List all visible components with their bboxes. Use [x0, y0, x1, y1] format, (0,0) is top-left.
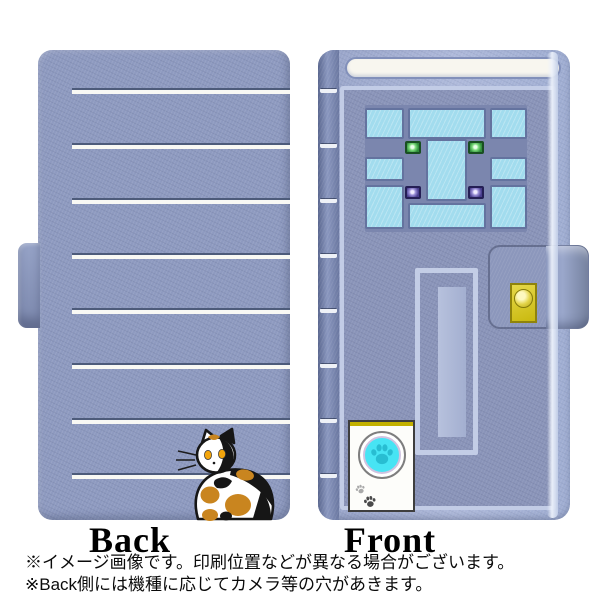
spine-band	[320, 308, 337, 313]
green-light-icon	[468, 141, 484, 154]
purple-light-icon	[468, 186, 484, 199]
purple-light-icon	[405, 186, 421, 199]
back-stripe	[72, 198, 290, 204]
product-image: Back Front ※イメージ画像です。印刷位置などが異なる場合がございます。…	[0, 0, 600, 600]
door-window-panes	[365, 105, 527, 232]
back-strap-tab	[18, 243, 40, 328]
back-stripe	[72, 363, 290, 369]
paw-print-icon	[362, 494, 378, 510]
window-pane-center	[426, 139, 467, 201]
spine-band	[320, 198, 337, 203]
window-pane	[490, 185, 527, 229]
back-stripe	[72, 308, 290, 314]
note-line-2: ※Back側には機種に応じてカメラ等の穴があきます。	[25, 574, 597, 596]
mail-slot-bar	[438, 287, 466, 437]
spine-band	[320, 253, 337, 258]
back-cover	[38, 50, 290, 520]
back-stripe	[72, 418, 290, 424]
window-pane	[365, 157, 404, 181]
green-light-icon	[405, 141, 421, 154]
front-cover	[318, 50, 570, 520]
intercom-button	[358, 431, 406, 479]
spine	[318, 50, 339, 520]
back-stripe	[72, 88, 290, 94]
doorknob-circle	[514, 289, 533, 308]
intercom-top-strip	[350, 422, 413, 426]
back-stripe	[72, 253, 290, 259]
calico-cat-illustration	[181, 428, 285, 520]
window-pane	[365, 108, 404, 139]
back-stripe	[72, 143, 290, 149]
case-edge-highlight	[547, 52, 558, 518]
door-transom-window	[345, 57, 561, 79]
spine-band	[320, 88, 337, 93]
spine-band	[320, 143, 337, 148]
spine-band	[320, 418, 337, 423]
note-line-1: ※イメージ画像です。印刷位置などが異なる場合がございます。	[25, 552, 597, 574]
spine-band	[320, 473, 337, 478]
paw-print-icon	[353, 482, 367, 496]
paw-intercom-panel	[348, 420, 415, 512]
window-pane	[490, 108, 527, 139]
window-pane	[365, 185, 404, 229]
paw-print-icon	[363, 436, 401, 474]
disclaimer-notes: ※イメージ画像です。印刷位置などが異なる場合がございます。 ※Back側には機種…	[25, 552, 597, 596]
spine-band	[320, 363, 337, 368]
doorknob-lock-icon	[510, 283, 537, 323]
window-pane	[490, 157, 527, 181]
window-pane	[408, 108, 486, 139]
window-pane	[408, 203, 486, 229]
